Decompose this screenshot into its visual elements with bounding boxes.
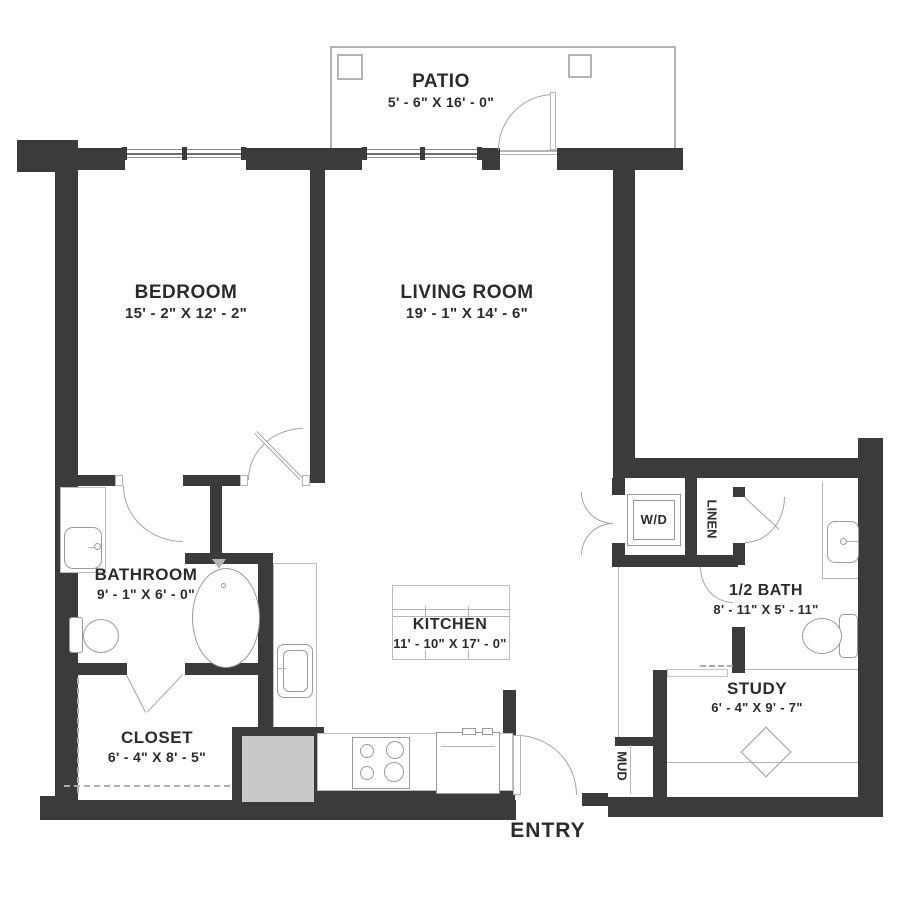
room-dims: 15' - 2" X 12' - 2"	[125, 306, 247, 321]
wall	[613, 148, 635, 460]
partition-line	[745, 669, 858, 670]
room-name: LIVING ROOM	[400, 283, 533, 302]
door-arc	[517, 735, 577, 795]
room-name: STUDY	[711, 680, 803, 697]
island-tick	[425, 650, 426, 660]
bifold-door	[126, 675, 146, 713]
floor-plan: PATIO 5' - 6" X 16' - 0" BEDROOM 15' - 2…	[0, 0, 900, 900]
room-dims: 6' - 4" X 8' - 5"	[108, 750, 206, 764]
faucet-knob	[94, 543, 101, 550]
room-name: BEDROOM	[125, 283, 247, 302]
window-jamb	[477, 147, 482, 160]
wall	[612, 478, 625, 495]
partition-line	[618, 567, 619, 737]
sink-basin	[283, 650, 308, 692]
wall	[60, 475, 123, 486]
sink	[436, 732, 500, 794]
refrigerator	[242, 736, 314, 802]
toilet-bowl	[83, 619, 119, 653]
burner	[384, 762, 404, 782]
room-name: 1/2 BATH	[713, 583, 818, 599]
room-label-closet: CLOSET 6' - 4" X 8' - 5"	[108, 729, 206, 764]
patio-column	[568, 54, 592, 78]
chair	[741, 727, 792, 778]
vanity-counter	[822, 482, 823, 579]
tub-faucet	[212, 559, 226, 569]
wall	[246, 148, 362, 170]
island-tick	[468, 650, 469, 660]
room-dims: 19' - 1" X 14' - 6"	[400, 306, 533, 321]
room-label-half-bath: 1/2 BATH 8' - 11" X 5' - 11"	[713, 583, 818, 616]
window	[122, 149, 246, 158]
wall	[612, 543, 625, 555]
burner	[360, 744, 374, 758]
window-jamb	[122, 147, 127, 160]
wall	[733, 487, 745, 497]
door-arc	[123, 486, 183, 542]
wall	[62, 663, 127, 675]
vanity-counter	[822, 578, 858, 579]
wall	[482, 148, 500, 170]
wall	[733, 543, 745, 565]
room-label-mud: MUD	[616, 751, 629, 781]
faucet	[462, 728, 476, 735]
closet-rod-dashed	[64, 785, 230, 787]
burner	[386, 741, 404, 759]
wall	[183, 475, 240, 486]
faucet	[278, 668, 286, 669]
faucet-knob	[840, 538, 847, 545]
room-name: BATHROOM	[95, 566, 198, 583]
room-dims: 6' - 4" X 9' - 7"	[711, 701, 803, 714]
room-label-study: STUDY 6' - 4" X 9' - 7"	[711, 680, 803, 714]
wall	[582, 793, 608, 806]
closet-rod-dashed	[77, 678, 79, 793]
room-name: PATIO	[388, 72, 494, 91]
toilet-bowl	[802, 618, 842, 654]
room-dims: 11' - 10" X 17' - 0"	[393, 637, 506, 650]
room-label-bathroom: BATHROOM 9' - 1" X 6' - 0"	[95, 566, 198, 601]
door-leaf	[550, 92, 556, 150]
window-jamb	[420, 147, 425, 160]
patio-column	[337, 54, 363, 80]
door-jamb	[115, 475, 123, 486]
faucet	[482, 728, 493, 735]
wall	[615, 737, 658, 746]
room-label-entry: ENTRY	[510, 820, 585, 841]
wall	[858, 438, 883, 817]
room-dims: 5' - 6" X 16' - 0"	[388, 95, 494, 109]
island-line	[392, 609, 510, 610]
room-label-living-room: LIVING ROOM 19' - 1" X 14' - 6"	[400, 283, 533, 321]
room-dims: 9' - 1" X 6' - 0"	[95, 587, 198, 601]
window-jamb	[362, 147, 367, 160]
room-name: CLOSET	[108, 729, 206, 746]
room-label-linen: LINEN	[706, 500, 719, 539]
bifold-door	[147, 674, 183, 712]
wall	[613, 458, 878, 478]
wall	[608, 797, 883, 817]
toilet-tank	[69, 617, 83, 653]
room-label-kitchen: KITCHEN 11' - 10" X 17' - 0"	[393, 617, 506, 650]
room-label-wd: W/D	[641, 513, 668, 526]
wall	[612, 555, 738, 567]
burner	[360, 766, 374, 780]
window	[362, 149, 482, 158]
wall	[685, 477, 697, 567]
door-arc	[581, 523, 613, 555]
wall	[732, 627, 745, 673]
window-jamb	[241, 147, 246, 160]
future-cabinet-dashed	[700, 665, 733, 667]
wall	[653, 670, 667, 810]
door-jamb	[240, 475, 248, 486]
door-leaf	[513, 735, 521, 795]
wall	[310, 170, 325, 483]
room-label-patio: PATIO 5' - 6" X 16' - 0"	[388, 72, 494, 109]
sink-divider	[441, 746, 495, 747]
room-label-bedroom: BEDROOM 15' - 2" X 12' - 2"	[125, 283, 247, 321]
wall	[258, 553, 273, 735]
partition-line	[630, 745, 631, 793]
bathtub	[192, 568, 260, 668]
tub-drain	[221, 583, 226, 588]
door-jamb	[302, 475, 310, 486]
room-name: KITCHEN	[393, 617, 506, 633]
window-jamb	[182, 147, 187, 160]
room-dims: 8' - 11" X 5' - 11"	[713, 603, 818, 616]
door-arc	[581, 492, 613, 524]
door-threshold	[500, 154, 557, 155]
wall	[210, 486, 222, 553]
cased-opening	[667, 669, 728, 677]
